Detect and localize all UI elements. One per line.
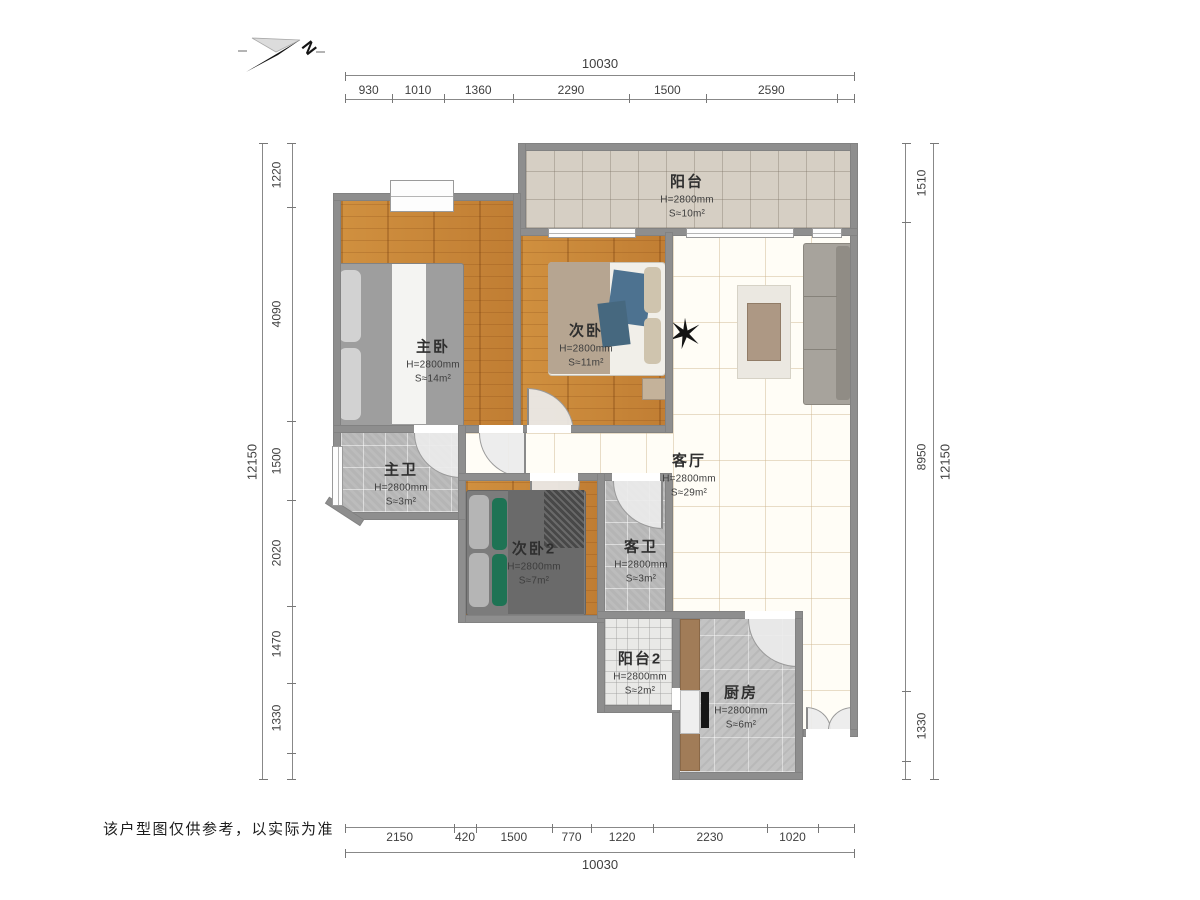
kitchen-sink (680, 690, 700, 734)
plant-icon (668, 314, 702, 352)
dim-segment (906, 761, 924, 780)
bedroom3-green-pillow (492, 554, 507, 606)
dim-segment: 1020 (767, 828, 819, 846)
room-height: H=2800mm (507, 561, 561, 575)
north-arrow-icon: N (238, 30, 338, 78)
bedroom2-nightstand (642, 378, 666, 400)
room-name: 主卧 (406, 336, 460, 357)
balcony-sliding-door (812, 228, 842, 238)
room-height: H=2800mm (406, 359, 460, 373)
master-bed-pillow (339, 270, 361, 342)
balcony-sliding-door (686, 228, 794, 238)
floor-plan: N (0, 0, 1200, 900)
room-name: 客厅 (662, 450, 716, 471)
door-opening (745, 611, 795, 619)
dim-total-left: 12150 (262, 143, 263, 780)
wall (597, 473, 605, 619)
wall (458, 615, 605, 623)
door-opening (527, 425, 571, 433)
dim-segment: 1330 (274, 683, 292, 753)
room-label-balcony: 阳台 H=2800mm S≈10m² (660, 171, 714, 222)
room-name: 次卧2 (507, 538, 561, 559)
room-area: S≈29m² (662, 487, 716, 501)
dim-segment: 1010 (392, 81, 443, 99)
dim-total-top-label: 10030 (582, 56, 618, 71)
north-label: N (298, 37, 321, 58)
dim-segment: 420 (454, 828, 475, 846)
wall (597, 611, 605, 713)
bay-window (390, 180, 454, 212)
dim-segment: 2150 (345, 828, 454, 846)
window (332, 446, 343, 506)
dim-segment: 2020 (274, 500, 292, 606)
dim-segment: 8950 (906, 222, 924, 691)
sofa-back (836, 246, 850, 400)
room-name: 主卫 (374, 459, 428, 480)
dim-segment: 4090 (274, 207, 292, 421)
room-name: 客卫 (614, 536, 668, 557)
room-label-master-bath: 主卫 H=2800mm S≈3m² (374, 459, 428, 510)
wall (518, 143, 858, 151)
wall (672, 772, 803, 780)
bedroom2-pillow (644, 318, 661, 364)
wall (665, 232, 673, 433)
room-label-bedroom2: 次卧 H=2800mm S≈11m² (559, 320, 613, 371)
room-label-living-room: 客厅 H=2800mm S≈29m² (662, 450, 716, 501)
dim-segment (837, 81, 855, 99)
room-area: S≈3m² (374, 496, 428, 510)
bedroom3-pillow (469, 495, 489, 549)
room-height: H=2800mm (662, 473, 716, 487)
dim-segment: 1500 (274, 421, 292, 500)
room-height: H=2800mm (613, 671, 667, 685)
room-label-kitchen: 厨房 H=2800mm S≈6m² (714, 682, 768, 733)
door-opening (806, 729, 850, 737)
dim-segment: 2290 (513, 81, 629, 99)
dim-total-right: 12150 (933, 143, 934, 780)
bedroom3-pillow (469, 553, 489, 607)
dim-segment: 1360 (444, 81, 513, 99)
dim-segment: 930 (345, 81, 392, 99)
room-area: S≈3m² (614, 573, 668, 587)
room-label-master-bedroom: 主卧 H=2800mm S≈14m² (406, 336, 460, 387)
dim-segment: 1470 (274, 606, 292, 683)
dim-segment: 1220 (274, 143, 292, 207)
room-height: H=2800mm (559, 343, 613, 357)
dim-segments-left: 122040901500202014701330 (274, 143, 293, 780)
dim-total-top: 10030 (345, 75, 855, 76)
room-area: S≈11m² (559, 357, 613, 371)
room-name: 阳台2 (613, 648, 667, 669)
door-opening (612, 473, 660, 481)
room-area: S≈6m² (714, 719, 768, 733)
dim-segments-bottom: 21504201500770122022301020 (345, 827, 855, 846)
master-bed-pillow (339, 348, 361, 420)
room-height: H=2800mm (660, 194, 714, 208)
coffee-table (747, 303, 781, 361)
dim-total-bottom: 10030 (345, 852, 855, 853)
pass-through-opening (672, 688, 680, 710)
bedroom2-pillow (644, 267, 661, 313)
wall (352, 512, 466, 520)
kitchen-stove (701, 692, 709, 728)
wall (458, 512, 466, 623)
sofa-cushion-line (804, 296, 837, 297)
dim-segment: 770 (552, 828, 591, 846)
room-name: 厨房 (714, 682, 768, 703)
dim-total-right-label: 12150 (938, 443, 953, 479)
room-height: H=2800mm (714, 705, 768, 719)
wall (513, 193, 521, 433)
room-label-guest-bath: 客卫 H=2800mm S≈3m² (614, 536, 668, 587)
sofa-cushion-line (804, 349, 837, 350)
bedroom3-green-pillow (492, 498, 507, 550)
wall (597, 705, 680, 713)
dim-segment: 1510 (906, 143, 924, 222)
dim-segment (818, 828, 855, 846)
dim-segments-top: 93010101360229015002590 (345, 81, 855, 100)
dim-segments-right: 151089501330 (905, 143, 924, 780)
room-height: H=2800mm (374, 482, 428, 496)
dim-segment: 1330 (906, 691, 924, 761)
door-opening (414, 425, 458, 433)
room-area: S≈10m² (660, 208, 714, 222)
dim-total-left-label: 12150 (245, 443, 260, 479)
balcony-sliding-door (548, 228, 636, 238)
door-opening (530, 473, 578, 481)
room-area: S≈2m² (613, 685, 667, 699)
room-height: H=2800mm (614, 559, 668, 573)
room-name: 次卧 (559, 320, 613, 341)
room-name: 阳台 (660, 171, 714, 192)
dim-segment: 1220 (591, 828, 653, 846)
disclaimer-note: 该户型图仅供参考，以实际为准 (103, 818, 334, 839)
room-label-bedroom3: 次卧2 H=2800mm S≈7m² (507, 538, 561, 589)
dim-segment (274, 753, 292, 780)
room-area: S≈14m² (406, 373, 460, 387)
dim-segment: 2590 (706, 81, 838, 99)
dim-segment: 2230 (653, 828, 766, 846)
door-opening (479, 425, 523, 433)
room-label-balcony2: 阳台2 H=2800mm S≈2m² (613, 648, 667, 699)
room-area: S≈7m² (507, 575, 561, 589)
wall (795, 611, 803, 780)
dim-segment: 1500 (629, 81, 705, 99)
dim-total-bottom-label: 10030 (582, 857, 618, 872)
dim-segment: 1500 (476, 828, 552, 846)
